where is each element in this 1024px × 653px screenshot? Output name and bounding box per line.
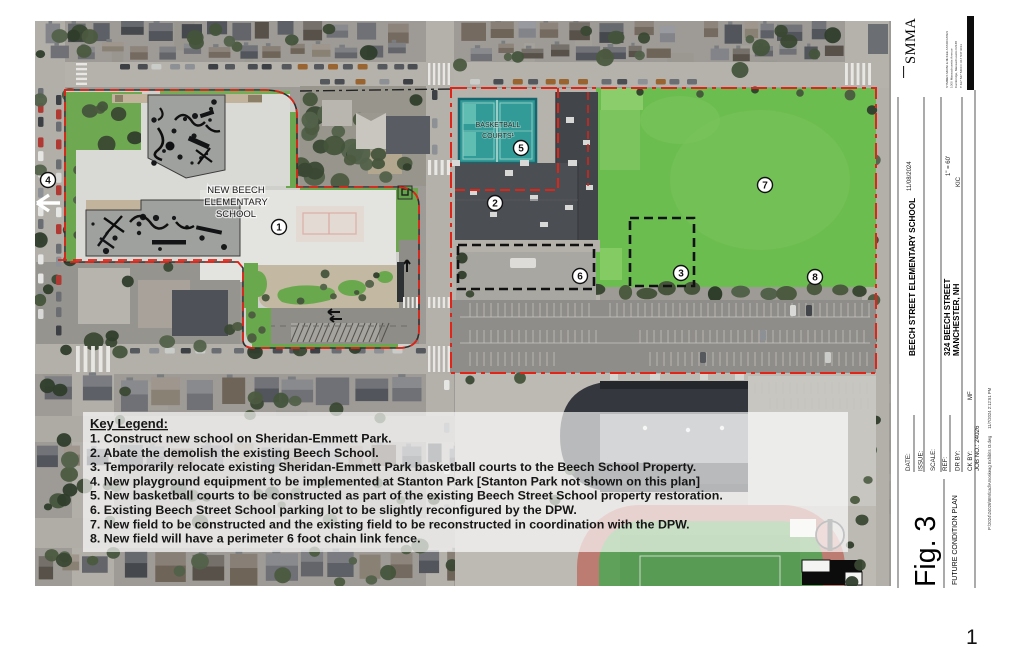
svg-text:Fig. 3: Fig. 3 (910, 516, 942, 587)
svg-text:1: 1 (276, 223, 282, 234)
svg-text:7. New field to be constructed: 7. New field to be constructed and the e… (90, 517, 690, 531)
svg-text:SCALE:: SCALE: (930, 449, 937, 471)
svg-text:FUTURE CONDITION PLAN: FUTURE CONDITION PLAN (952, 495, 959, 585)
svg-text:NEW BEECH: NEW BEECH (207, 185, 265, 196)
svg-text:Cambridge, Massachusetts 02138: Cambridge, Massachusetts 02138 (954, 41, 958, 88)
svg-text:MF: MF (968, 391, 974, 400)
svg-text:T 617 547 5400 F 617 547 9011: T 617 547 5400 F 617 547 9011 (959, 44, 963, 88)
svg-text:SYMMES MAINI & McKEE ASSOCIATE: SYMMES MAINI & McKEE ASSOCIATES (945, 31, 949, 88)
svg-text:BASKETBALL: BASKETBALL (476, 122, 521, 129)
svg-text:8: 8 (812, 273, 818, 284)
svg-text:2: 2 (492, 199, 498, 210)
svg-text:CK BY:: CK BY: (967, 451, 974, 471)
svg-text:1" = 60': 1" = 60' (946, 156, 952, 176)
svg-text:Key Legend:: Key Legend: (90, 416, 168, 431)
svg-text:5: 5 (518, 144, 524, 155)
svg-text:1000 Massachusetts Avenue: 1000 Massachusetts Avenue (950, 48, 954, 88)
svg-text:DATE:: DATE: (905, 453, 912, 471)
svg-text:KIC: KIC (956, 176, 962, 187)
svg-text:3: 3 (678, 269, 684, 280)
svg-text:COURTS¹: COURTS¹ (482, 133, 514, 140)
svg-text:4: 4 (45, 176, 51, 187)
svg-text:5. New basketball courts to be: 5. New basketball courts to be construct… (90, 489, 723, 503)
svg-text:8. New field will have a perim: 8. New field will have a perimeter 6 foo… (90, 532, 421, 546)
svg-text:1. Construct new school on She: 1. Construct new school on Sheridan-Emme… (90, 432, 392, 446)
svg-text:REF:: REF: (942, 457, 949, 471)
svg-text:7: 7 (762, 181, 768, 192)
svg-text:JOB NO.: 24026: JOB NO.: 24026 (974, 425, 981, 471)
svg-text:P:\2024\24026\BIM\cad\Amoskeag: P:\2024\24026\BIM\cad\Amoskeag Exhibits … (987, 387, 992, 530)
svg-text:1: 1 (966, 626, 978, 649)
svg-text:4. New playground equipment to: 4. New playground equipment to be implem… (90, 474, 700, 488)
svg-text:MANCHESTER, NH: MANCHESTER, NH (952, 283, 961, 356)
svg-text:ELEMENTARY: ELEMENTARY (204, 197, 268, 208)
svg-text:2. Abate the demolish the exis: 2. Abate the demolish the existing Beech… (90, 446, 379, 460)
svg-text:3. Temporarily relocate existi: 3. Temporarily relocate existing Sherida… (90, 460, 696, 474)
svg-text:DR BY:: DR BY: (955, 450, 962, 471)
svg-text:11/08/2024: 11/08/2024 (907, 161, 913, 191)
svg-text:SMMA: SMMA (903, 18, 919, 64)
svg-text:BEECH STREET ELEMENTARY SCHOOL: BEECH STREET ELEMENTARY SCHOOL (908, 198, 917, 356)
svg-text:SCHOOL: SCHOOL (216, 209, 256, 220)
svg-text:324 BEECH STREET: 324 BEECH STREET (943, 279, 952, 356)
svg-text:ISSUE:: ISSUE: (917, 450, 924, 471)
svg-text:6. Existing Beech Street Schoo: 6. Existing Beech Street School parking … (90, 503, 577, 517)
svg-text:6: 6 (577, 272, 583, 283)
